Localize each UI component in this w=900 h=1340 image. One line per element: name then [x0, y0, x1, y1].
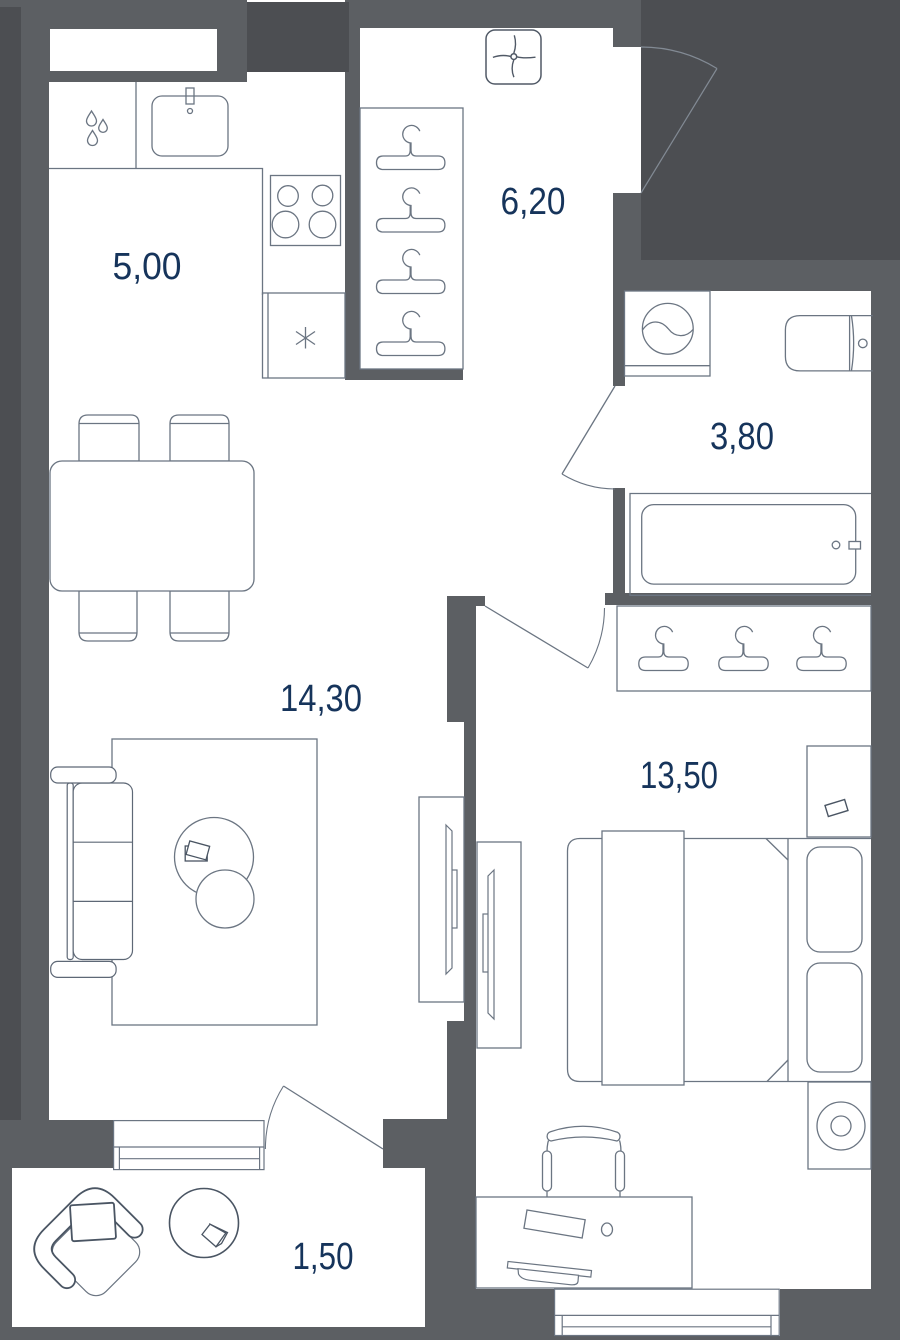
- svg-text:3,80: 3,80: [710, 416, 774, 458]
- svg-text:14,30: 14,30: [280, 678, 362, 720]
- svg-text:6,20: 6,20: [501, 181, 566, 223]
- svg-text:1,50: 1,50: [293, 1236, 354, 1278]
- svg-text:13,50: 13,50: [640, 755, 718, 797]
- svg-text:5,00: 5,00: [113, 246, 182, 288]
